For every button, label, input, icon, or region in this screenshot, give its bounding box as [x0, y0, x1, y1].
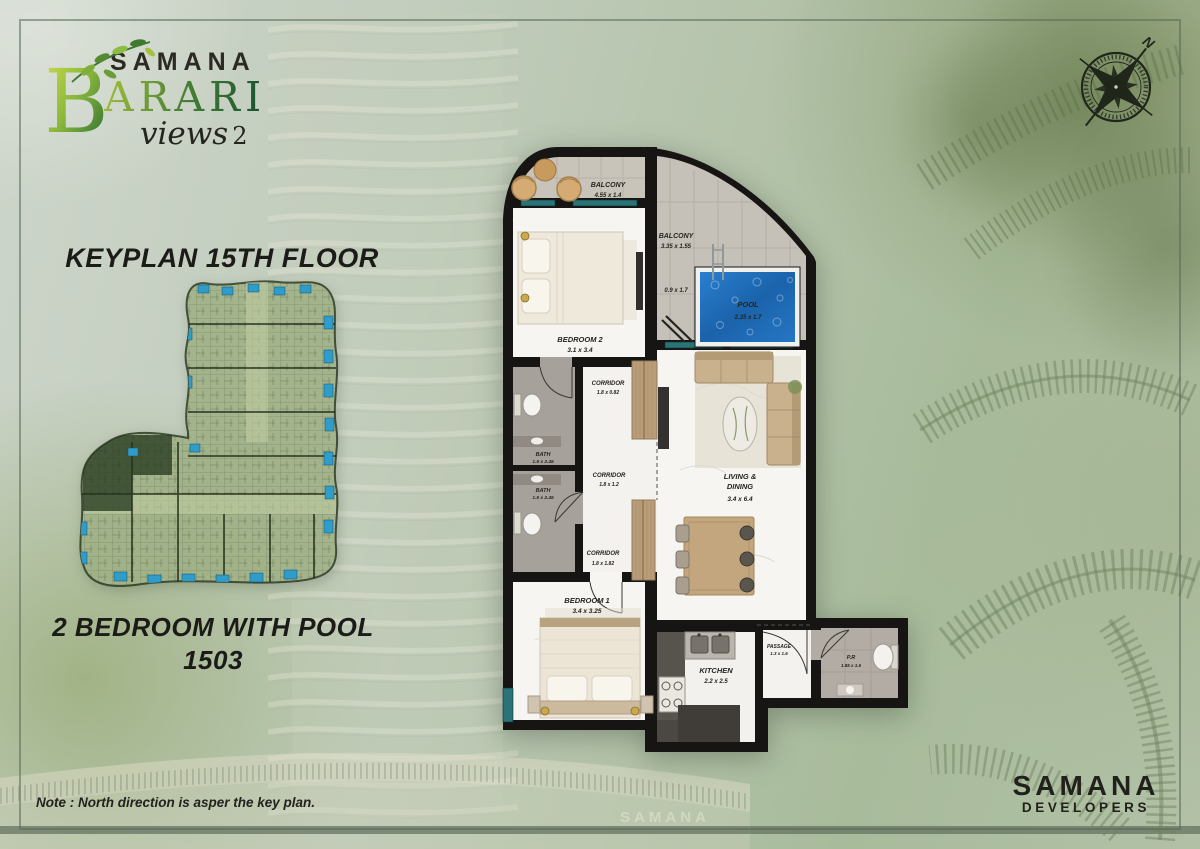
unit-title-block: 2 BEDROOM WITH POOL 1503: [43, 611, 383, 677]
brochure-page: SAMANA B SAMANA ARARI views2: [0, 0, 1200, 849]
logo-script-word: views: [140, 116, 228, 152]
room-label: KITCHEN: [699, 666, 733, 675]
room-label: CORRIDOR: [593, 473, 626, 479]
unit-title: 2 BEDROOM WITH POOL: [43, 611, 383, 644]
keyplan-map: [70, 276, 350, 596]
unit-number: 1503: [43, 644, 383, 677]
room-dims: 1.5 x 2.45: [532, 495, 554, 501]
room-dims: 1.3 x 1.6: [770, 651, 788, 656]
room-label: BALCONY: [659, 233, 695, 240]
room-dims: 2.2 x 2.5: [703, 679, 728, 685]
keyplan-title: KEYPLAN 15TH FLOOR: [52, 243, 392, 274]
living-tv-unit: [658, 387, 669, 449]
room-label: BEDROOM 2: [557, 335, 603, 344]
room-dims: 3.4 x 3.25: [573, 608, 602, 615]
room-label: LIVING &: [724, 472, 757, 481]
developer-division: DEVELOPERS: [1006, 800, 1166, 815]
floorplan: BALCONY 4.55 x 1.4 BALCONY 3.35 x 1.55 0…: [495, 140, 945, 760]
building-sign-text: SAMANA: [620, 809, 710, 826]
kitchen-island: [678, 705, 740, 742]
room-dims: 4.55 x 1.4: [594, 193, 622, 199]
bedroom1-bed: [528, 608, 653, 718]
bath-upper-floor: [513, 367, 575, 465]
logo-script-text: views2: [140, 116, 248, 152]
room-label: POOL: [737, 300, 759, 309]
room-dims: 2.35 x 1.7: [734, 315, 762, 321]
developer-name: SAMANA: [1006, 770, 1166, 802]
leaf-vine-icon: [66, 30, 158, 90]
kitchen-sink: [691, 636, 708, 653]
bedroom2-tv-unit: [636, 252, 643, 310]
north-note: Note : North direction is asper the key …: [36, 795, 315, 810]
room-dims: 1.8 x 1.2: [599, 482, 619, 488]
room-label: BEDROOM 1: [564, 596, 609, 605]
room-label: DINING: [727, 482, 753, 491]
room-dims: 1.5 x 2.45: [532, 459, 554, 465]
room-dims: 1.85 x 1.6: [841, 663, 862, 668]
compass-north-label: N: [1140, 33, 1159, 52]
room-label: PASSAGE: [767, 644, 792, 650]
room-label: CORRIDOR: [592, 381, 625, 387]
room-dims: 3.1 x 3.4: [567, 347, 593, 354]
compass-rose-icon: N: [1066, 30, 1166, 140]
room-dims: 0.9 x 1.7: [664, 288, 688, 294]
brand-logo: B SAMANA ARARI views2: [38, 40, 278, 160]
bath-lower-floor: [513, 471, 575, 572]
developer-logo: SAMANA DEVELOPERS: [1006, 770, 1166, 815]
bedroom2-bed: [518, 232, 643, 324]
room-label: BATH: [536, 452, 552, 458]
room-label: BATH: [536, 488, 552, 494]
room-dims: 1.8 x 0.82: [597, 390, 619, 396]
room-dims: 1.8 x 1.82: [592, 561, 614, 567]
room-label: P.R: [847, 655, 855, 661]
plant-icon: [788, 380, 802, 394]
room-dims: 3.4 x 6.4: [727, 496, 753, 503]
room-label: CORRIDOR: [587, 551, 620, 557]
room-label: BALCONY: [591, 182, 627, 189]
logo-script-number: 2: [232, 122, 247, 150]
room-dims: 3.35 x 1.55: [661, 244, 692, 250]
